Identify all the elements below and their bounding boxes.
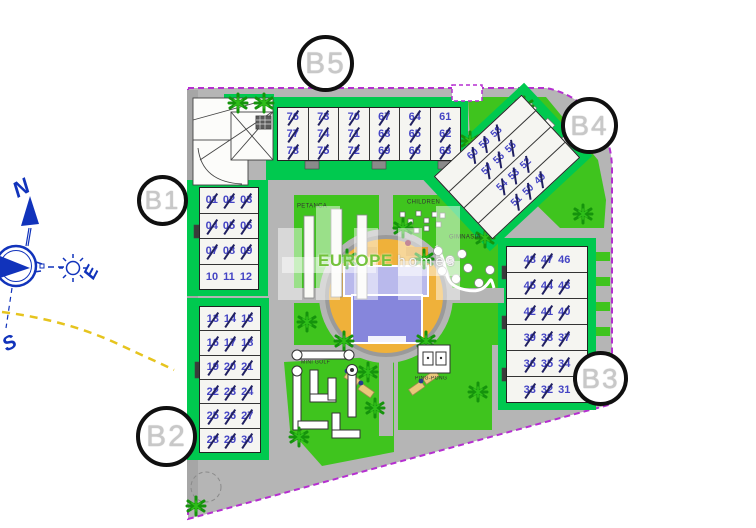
unit-number-09: 09: [239, 244, 253, 258]
block-b1-building: 010203040506070809101112: [199, 187, 259, 290]
unit-number-23: 23: [223, 385, 237, 399]
unit-number-29: 29: [223, 433, 237, 447]
unit-number-76: 76: [286, 110, 300, 124]
unit-number-07: 07: [205, 244, 219, 258]
badge-b4-label: B4: [570, 110, 608, 142]
unit-number-73: 73: [316, 110, 330, 124]
unit-group: 767778: [278, 108, 309, 160]
sun-icon: [67, 262, 80, 275]
unit-number-22: 22: [206, 385, 220, 399]
unit-number-66: 66: [408, 144, 422, 158]
unit-number-70: 70: [347, 110, 361, 124]
gym-label: GIMNASIA: [449, 234, 481, 240]
unit-number-05: 05: [222, 219, 236, 233]
unit-number-33: 33: [523, 383, 537, 397]
unit-number-35: 35: [540, 357, 554, 371]
unit-number-46: 46: [557, 253, 571, 267]
unit-number-67: 67: [377, 110, 391, 124]
petanca-courts: [304, 209, 367, 299]
unit-number-14: 14: [223, 312, 237, 326]
unit-number-38: 38: [540, 331, 554, 345]
unit-number-01: 01: [205, 193, 219, 207]
unit-number-04: 04: [205, 219, 219, 233]
unit-number-15: 15: [240, 312, 254, 326]
utility-plot: [452, 85, 482, 101]
unit-number-19: 19: [206, 360, 220, 374]
badge-b5: B5: [297, 35, 354, 92]
unit-group: 131415: [200, 307, 260, 331]
unit-group: 161718: [200, 331, 260, 355]
unit-number-06: 06: [239, 219, 253, 233]
unit-group: 040506: [200, 214, 258, 240]
unit-group: 393837: [507, 325, 587, 351]
unit-number-11: 11: [222, 270, 236, 284]
compass-south-label: S: [0, 330, 21, 356]
unit-number-43: 43: [557, 279, 571, 293]
unit-number-45: 45: [523, 279, 537, 293]
unit-group: 222324: [200, 380, 260, 404]
site-plan: N E S 7677787374757071726768696465666162…: [0, 0, 756, 528]
unit-number-65: 65: [408, 127, 422, 141]
unit-number-40: 40: [557, 305, 571, 319]
unit-number-78: 78: [286, 144, 300, 158]
unit-number-37: 37: [557, 331, 571, 345]
unit-number-68: 68: [377, 127, 391, 141]
unit-number-71: 71: [347, 127, 361, 141]
unit-group: 070809: [200, 239, 258, 265]
unit-number-36: 36: [523, 357, 537, 371]
unit-number-26: 26: [223, 409, 237, 423]
unit-group: 616263: [431, 108, 461, 160]
block-b5-building: 767778737475707172676869646566616263: [277, 107, 461, 161]
unit-number-10: 10: [205, 270, 219, 284]
unit-group: 484746: [507, 247, 587, 273]
unit-group: 676869: [370, 108, 401, 160]
unit-number-44: 44: [540, 279, 554, 293]
unit-number-47: 47: [540, 253, 554, 267]
unit-group: 010203: [200, 188, 258, 214]
unit-number-39: 39: [523, 331, 537, 345]
badge-b1: B1: [137, 175, 188, 226]
unit-number-31: 31: [557, 383, 571, 397]
unit-group: 282930: [200, 429, 260, 452]
unit-number-16: 16: [206, 336, 220, 350]
unit-number-27: 27: [240, 409, 254, 423]
unit-group: 737475: [309, 108, 340, 160]
unit-group: 252627: [200, 404, 260, 428]
badge-b5-label: B5: [305, 47, 346, 81]
children-label: CHILDREN: [407, 199, 440, 205]
unit-number-13: 13: [206, 312, 220, 326]
unit-number-28: 28: [206, 433, 220, 447]
unit-number-18: 18: [240, 336, 254, 350]
unit-number-17: 17: [223, 336, 237, 350]
unit-number-20: 20: [223, 360, 237, 374]
unit-number-74: 74: [316, 127, 330, 141]
badge-b3: B3: [573, 351, 628, 406]
badge-b1-label: B1: [145, 185, 181, 216]
unit-number-25: 25: [206, 409, 220, 423]
badge-b2: B2: [136, 406, 197, 467]
unit-number-08: 08: [222, 244, 236, 258]
unit-number-61: 61: [438, 110, 452, 124]
unit-number-63: 63: [438, 144, 452, 158]
unit-number-41: 41: [540, 305, 554, 319]
unit-group: 101112: [200, 265, 258, 290]
unit-number-42: 42: [523, 305, 537, 319]
unit-group: 192021: [200, 356, 260, 380]
badge-b2-label: B2: [146, 420, 187, 454]
unit-number-12: 12: [239, 270, 253, 284]
ping-pong-table-icon: [418, 345, 450, 373]
unit-number-03: 03: [239, 193, 253, 207]
site-plan-basemap: N E S: [0, 0, 756, 528]
unit-number-64: 64: [408, 110, 422, 124]
unit-number-62: 62: [438, 127, 452, 141]
unit-number-72: 72: [347, 144, 361, 158]
sun-path-arc: [2, 312, 174, 370]
unit-group: 707172: [339, 108, 370, 160]
unit-number-02: 02: [222, 193, 236, 207]
unit-number-77: 77: [286, 127, 300, 141]
unit-group: 424140: [507, 299, 587, 325]
unit-number-30: 30: [240, 433, 254, 447]
unit-group: 454443: [507, 273, 587, 299]
unit-number-24: 24: [240, 385, 254, 399]
unit-number-21: 21: [240, 360, 254, 374]
block-b2-building: 131415161718192021222324252627282930: [199, 306, 261, 453]
unit-number-32: 32: [540, 383, 554, 397]
pool-main: [352, 295, 422, 343]
ping-pong-label: PING-PONG: [415, 376, 447, 381]
badge-b4: B4: [561, 97, 618, 154]
badge-b3-label: B3: [581, 363, 619, 395]
unit-number-34: 34: [557, 357, 571, 371]
petanca-label: PETANCA: [297, 203, 327, 209]
compass-north-label: N: [8, 172, 35, 202]
unit-number-75: 75: [316, 144, 330, 158]
mini-golf-label: MINI GOLF: [301, 360, 330, 365]
compass-east-label: E: [79, 261, 103, 282]
unit-number-69: 69: [377, 144, 391, 158]
unit-number-48: 48: [523, 253, 537, 267]
unit-group: 646566: [400, 108, 431, 160]
